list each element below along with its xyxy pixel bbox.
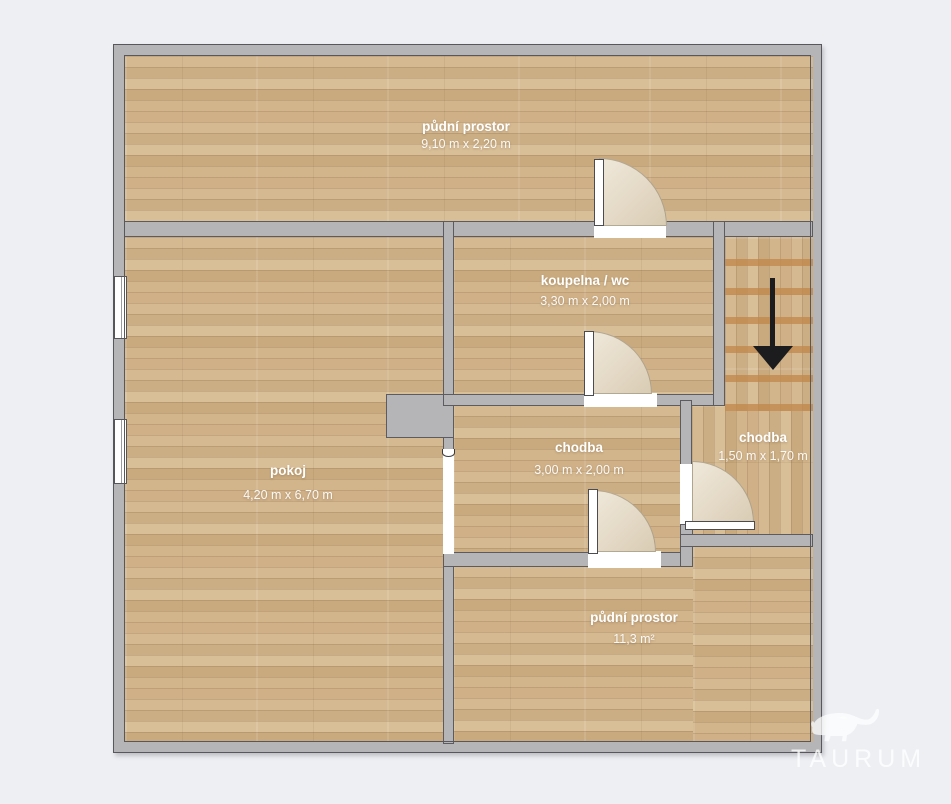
- stair-tread: [725, 375, 813, 382]
- doorway-pokoj-hinge-icon: [442, 449, 455, 457]
- floor-bathroom: [453, 237, 713, 394]
- stair-tread: [725, 317, 813, 324]
- floor-attic-bottom-right: [693, 546, 813, 742]
- floor-attic-bottom-left: [453, 566, 693, 742]
- door-leaf-attic-bottom: [588, 489, 598, 554]
- room-dimensions: 9,10 m x 2,20 m: [421, 137, 511, 152]
- room-name: chodba: [718, 430, 808, 446]
- stairs-down-arrowhead-icon: [753, 346, 793, 370]
- wall-hall-small-bottom: [680, 534, 813, 547]
- wall-bathroom-right: [713, 221, 725, 406]
- room-dimensions: 4,20 m x 6,70 m: [243, 488, 333, 503]
- stairs-down-arrow-icon: [770, 278, 775, 348]
- room-label-pokoj: pokoj 4,20 m x 6,70 m: [243, 463, 333, 503]
- room-dimensions: 1,50 m x 1,70 m: [718, 449, 808, 464]
- wall-hall-divider-upper: [680, 400, 692, 466]
- doorway-bathroom: [584, 393, 657, 407]
- room-dimensions: 3,00 m x 2,00 m: [534, 463, 624, 478]
- staircase: [725, 237, 813, 411]
- stair-tread: [725, 259, 813, 266]
- stair-tread: [725, 288, 813, 295]
- wall-attic-top-bottom: [124, 221, 813, 237]
- door-leaf-attic-top: [594, 159, 604, 226]
- floor-plan: půdní prostor 9,10 m x 2,20 m koupelna /…: [113, 44, 822, 753]
- room-name: půdní prostor: [590, 610, 678, 626]
- room-label-bathroom: koupelna / wc 3,30 m x 2,00 m: [540, 273, 630, 309]
- room-name: pokoj: [243, 463, 333, 479]
- room-dimensions: 3,30 m x 2,00 m: [540, 294, 630, 309]
- wall-pokoj-right-lower: [443, 554, 454, 744]
- doorway-pokoj: [443, 451, 454, 554]
- window-pokoj-lower: [114, 419, 127, 484]
- room-name: půdní prostor: [421, 119, 511, 135]
- doorway-attic-bottom: [588, 551, 661, 568]
- door-leaf-hall-small: [685, 521, 755, 530]
- door-leaf-bathroom: [584, 331, 594, 396]
- doorway-hall-small: [680, 464, 692, 524]
- room-label-hall-small: chodba 1,50 m x 1,70 m: [718, 430, 808, 464]
- room-name: chodba: [534, 440, 624, 456]
- room-dimensions: 11,3 m²: [590, 632, 678, 647]
- room-name: koupelna / wc: [540, 273, 630, 289]
- stair-tread: [725, 404, 813, 411]
- room-label-attic-top: půdní prostor 9,10 m x 2,20 m: [421, 119, 511, 152]
- window-pokoj-upper: [114, 276, 127, 339]
- room-label-attic-bottom: půdní prostor 11,3 m²: [590, 610, 678, 647]
- room-label-hall-main: chodba 3,00 m x 2,00 m: [534, 440, 624, 478]
